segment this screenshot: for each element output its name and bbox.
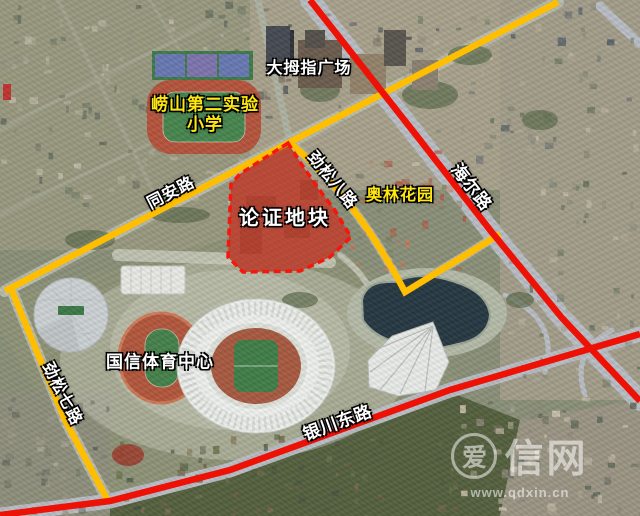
watermark-site-name: 信网 [504,428,588,484]
watermark-url: www.qdxin.cn [436,485,604,500]
guoxin-sports-center-label: 国信体育中心 [106,348,214,373]
school-label: 崂山第二实验 小学 [151,95,259,135]
plot-label: 论证地块 [239,202,331,231]
school-label-line1: 崂山第二实验 [151,95,259,115]
watermark: 爱 信网 www.qdxin.cn [436,428,604,500]
satellite-map: 大拇指广场 崂山第二实验 小学 同安路 劲松八路 奥林花园 海尔路 论证地块 国… [0,0,640,516]
school-label-line2: 小学 [151,115,259,135]
watermark-logo-icon: 爱 [451,433,497,479]
damuzhi-square-label: 大拇指广场 [266,54,351,78]
aolin-garden-label: 奥林花园 [366,181,434,205]
